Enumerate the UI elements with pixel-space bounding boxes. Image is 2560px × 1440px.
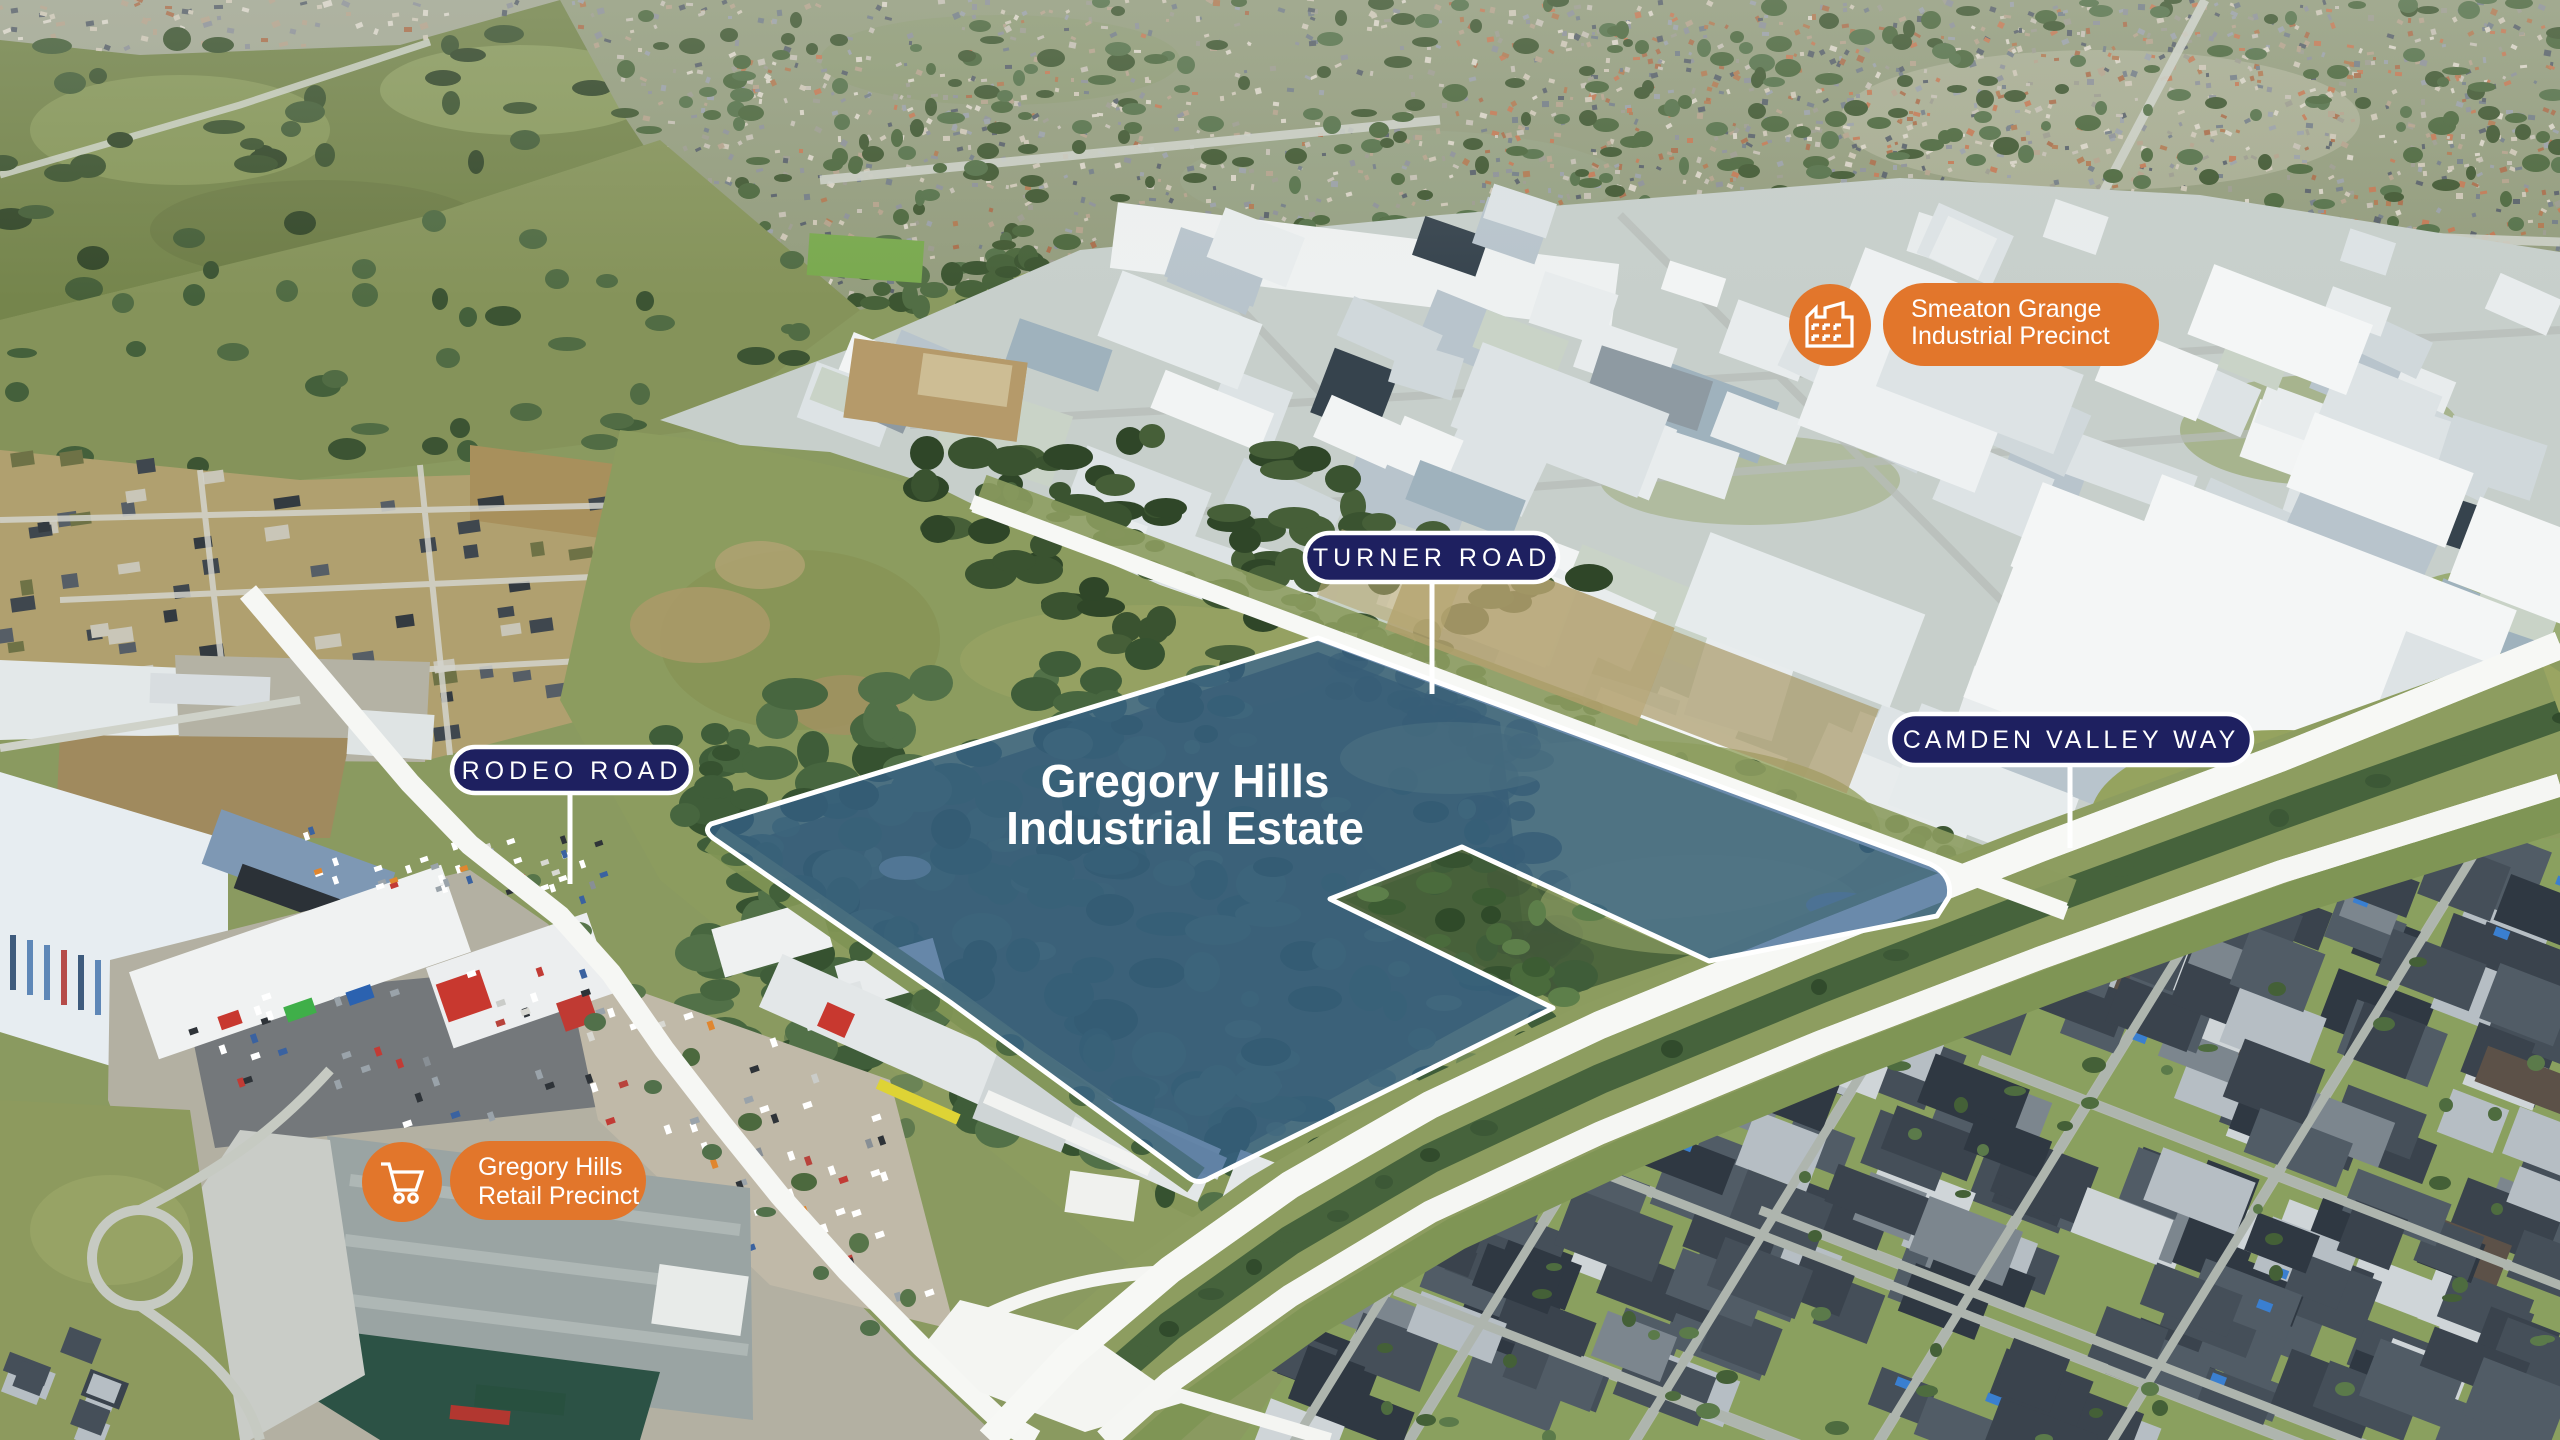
svg-text:CAMDEN VALLEY WAY: CAMDEN VALLEY WAY (1903, 726, 2240, 754)
svg-text:Retail Precinct: Retail Precinct (478, 1182, 639, 1210)
svg-text:Gregory Hills: Gregory Hills (1041, 755, 1330, 807)
svg-text:Industrial Estate: Industrial Estate (1006, 802, 1364, 854)
svg-text:TURNER ROAD: TURNER ROAD (1313, 544, 1551, 572)
svg-text:RODEO ROAD: RODEO ROAD (462, 757, 683, 785)
svg-text:Gregory Hills: Gregory Hills (478, 1153, 622, 1181)
svg-text:Industrial Precinct: Industrial Precinct (1911, 322, 2110, 350)
